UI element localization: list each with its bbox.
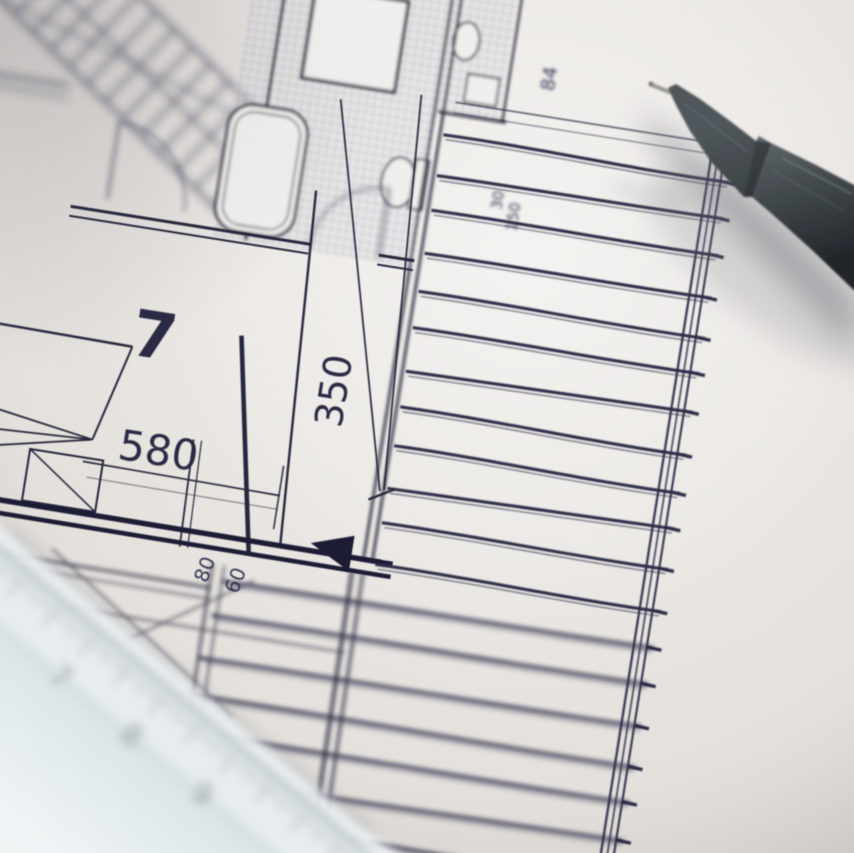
blueprint-photo: 7 580 350 — [0, 0, 854, 853]
blueprint-photo-scene: 7 580 350 — [0, 0, 854, 853]
vignette — [0, 0, 854, 853]
